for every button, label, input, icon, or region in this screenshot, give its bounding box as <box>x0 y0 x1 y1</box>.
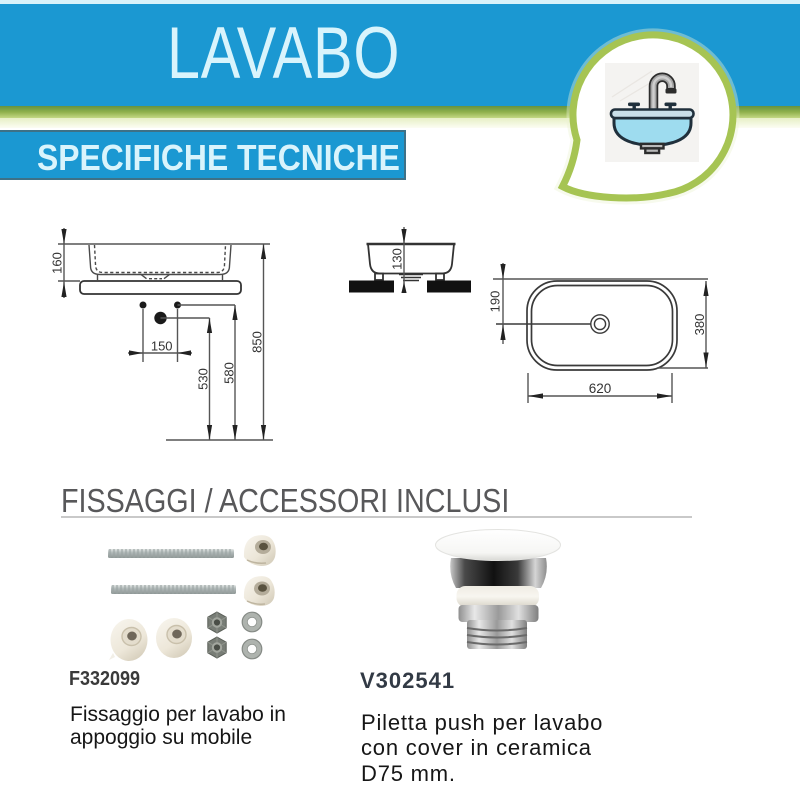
svg-text:580: 580 <box>222 362 237 384</box>
svg-text:620: 620 <box>589 381 612 396</box>
svg-text:530: 530 <box>196 368 211 390</box>
svg-text:850: 850 <box>250 331 265 353</box>
svg-text:160: 160 <box>50 252 65 274</box>
svg-text:190: 190 <box>488 291 503 313</box>
svg-text:150: 150 <box>151 339 173 354</box>
svg-text:130: 130 <box>390 248 405 270</box>
svg-text:380: 380 <box>692 314 707 336</box>
